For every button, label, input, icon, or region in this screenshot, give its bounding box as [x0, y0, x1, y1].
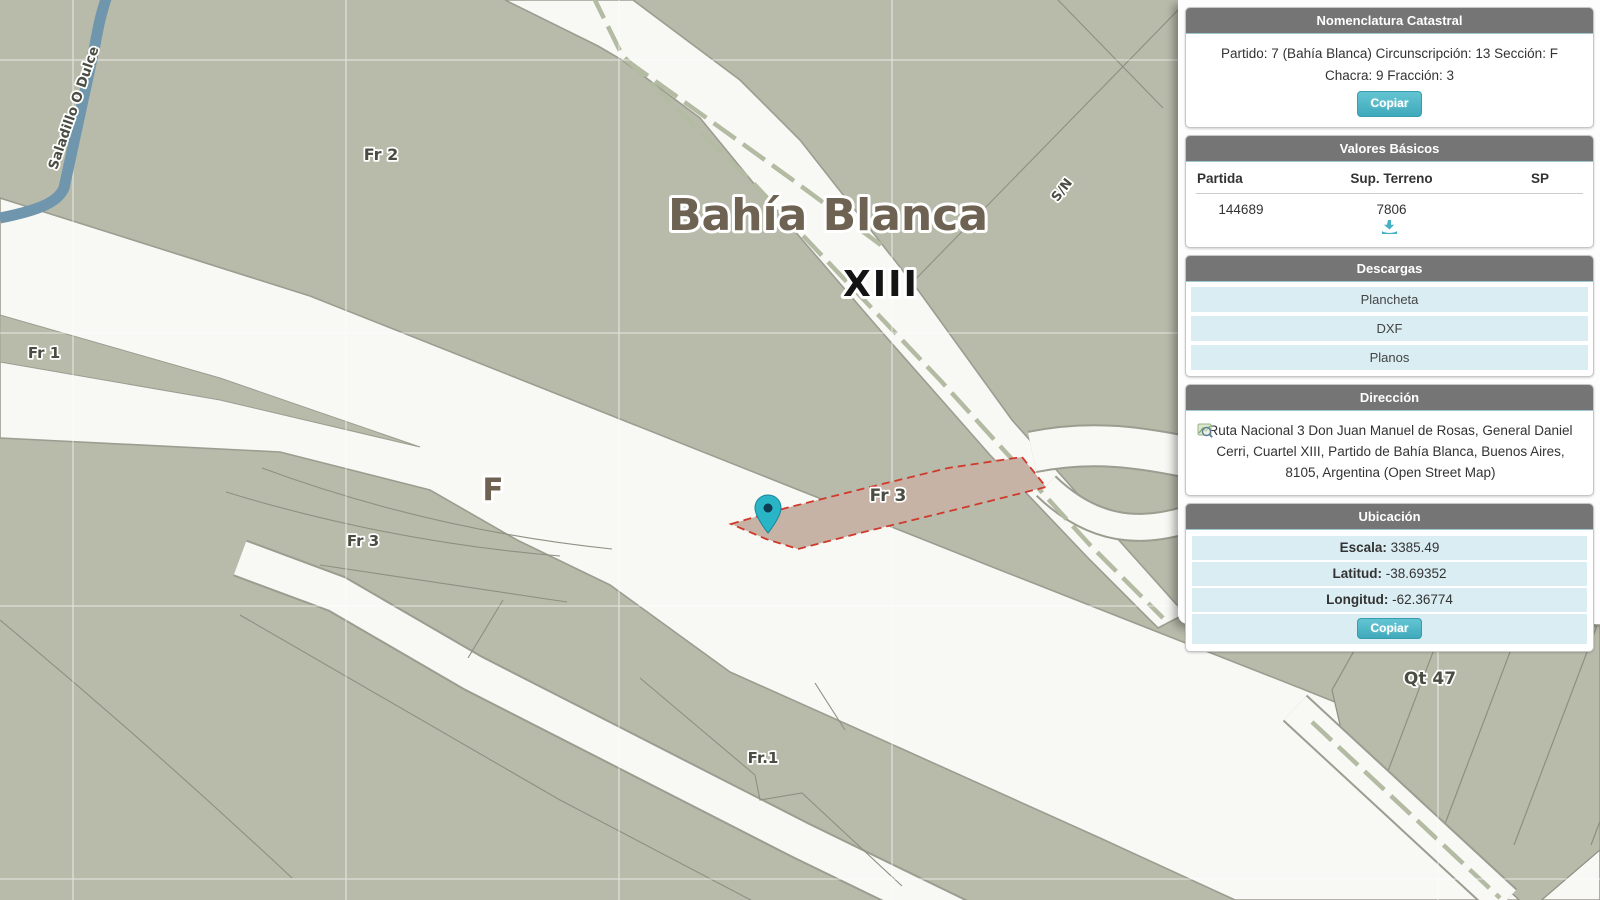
scale-label: Escala:	[1340, 540, 1387, 555]
value-sup-terreno: 7806	[1296, 202, 1487, 217]
card-direccion-title: Dirección	[1186, 385, 1593, 411]
nomenclatura-line1: Partido: 7 (Bahía Blanca) Circunscripció…	[1194, 43, 1585, 65]
card-ubicacion-title: Ubicación	[1186, 504, 1593, 530]
longitude-label: Longitud:	[1326, 592, 1388, 607]
latitude-row: Latitud: -38.69352	[1192, 562, 1587, 588]
longitude-row: Longitud: -62.36774	[1192, 588, 1587, 614]
nomenclatura-line2: Chacra: 9 Fracción: 3	[1194, 65, 1585, 87]
map-label-fr3-median: Fr 3	[347, 532, 379, 550]
address-text[interactable]: Ruta Nacional 3 Don Juan Manuel de Rosas…	[1209, 423, 1573, 480]
latitude-value: -38.69352	[1382, 566, 1447, 581]
download-plancheta-button[interactable]: Plancheta	[1191, 287, 1588, 312]
card-nomenclatura: Nomenclatura Catastral Partido: 7 (Bahía…	[1185, 7, 1594, 128]
copy-nomenclatura-button[interactable]: Copiar	[1357, 91, 1421, 118]
column-sp: SP	[1487, 171, 1593, 186]
table-row: 144689 7806	[1186, 194, 1593, 219]
scale-row: Escala: 3385.49	[1192, 536, 1587, 562]
map-label-cuartel: XIII	[843, 264, 919, 305]
map-label-fr1-south: Fr.1	[748, 749, 779, 767]
value-partida: 144689	[1186, 202, 1296, 217]
map-label-qt47: Qt 47	[1404, 669, 1456, 689]
map-search-icon	[1197, 422, 1213, 438]
map-label-fr1: Fr 1	[28, 344, 60, 362]
card-ubicacion: Ubicación Escala: 3385.49 Latitud: -38.6…	[1185, 503, 1594, 652]
download-planos-button[interactable]: Planos	[1191, 345, 1588, 370]
cadastral-map-app: Bahía Blanca XIII F Fr 2 Fr 1 Fr 3 Fr 3 …	[0, 0, 1600, 900]
column-partida: Partida	[1186, 171, 1296, 186]
map-label-fr3-parcel: Fr 3	[870, 486, 907, 506]
card-descargas-title: Descargas	[1186, 256, 1593, 282]
map-label-section-f: F	[482, 472, 503, 508]
map-label-city: Bahía Blanca	[668, 190, 988, 241]
card-valores-title: Valores Básicos	[1186, 136, 1593, 162]
card-descargas: Descargas Plancheta DXF Planos	[1185, 255, 1594, 377]
copy-location-row: Copiar	[1192, 614, 1587, 644]
download-icon[interactable]	[1381, 220, 1398, 235]
scale-value: 3385.49	[1387, 540, 1440, 555]
column-sup-terreno: Sup. Terreno	[1296, 171, 1487, 186]
map-label-fr2: Fr 2	[364, 145, 399, 164]
info-panel: Nomenclatura Catastral Partido: 7 (Bahía…	[1178, 0, 1600, 624]
latitude-label: Latitud:	[1332, 566, 1382, 581]
card-valores: Valores Básicos Partida Sup. Terreno SP …	[1185, 135, 1594, 248]
card-nomenclatura-title: Nomenclatura Catastral	[1186, 8, 1593, 34]
copy-location-button[interactable]: Copiar	[1357, 618, 1421, 639]
card-direccion: Dirección Ruta Nacional 3 Don Juan Manue…	[1185, 384, 1594, 496]
longitude-value: -62.36774	[1388, 592, 1453, 607]
download-dxf-button[interactable]: DXF	[1191, 316, 1588, 341]
